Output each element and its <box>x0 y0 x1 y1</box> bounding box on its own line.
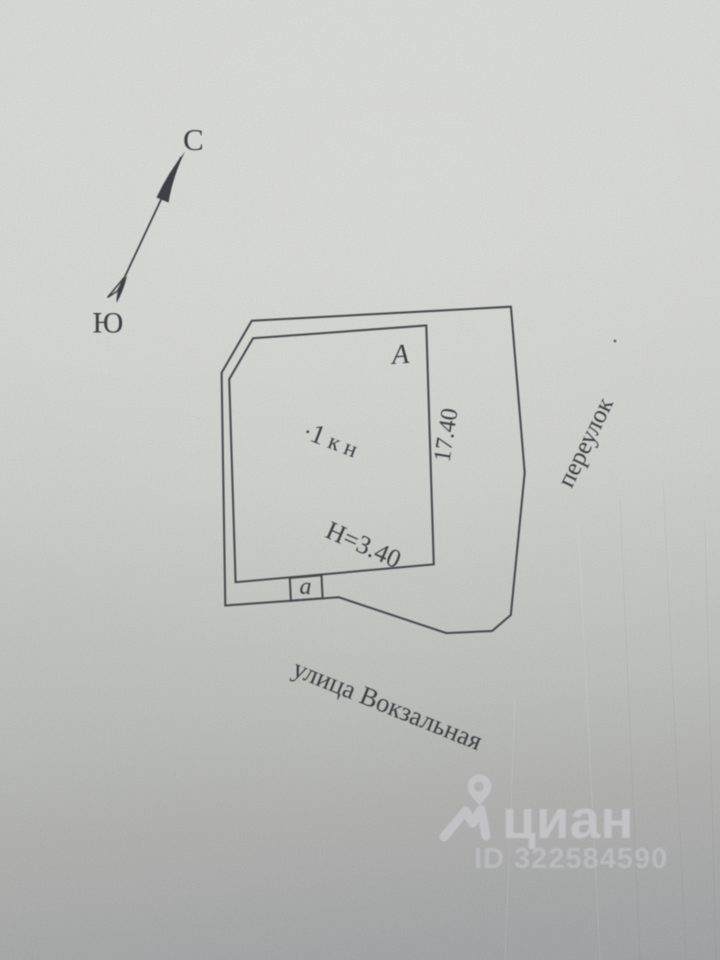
svg-text:С: С <box>183 122 204 157</box>
svg-text:Ю: Ю <box>93 307 124 340</box>
svg-text:ID 322584590: ID 322584590 <box>474 843 668 875</box>
svg-text:циан: циан <box>502 788 633 850</box>
svg-text:А: А <box>389 339 411 371</box>
svg-text:а: а <box>300 574 312 600</box>
